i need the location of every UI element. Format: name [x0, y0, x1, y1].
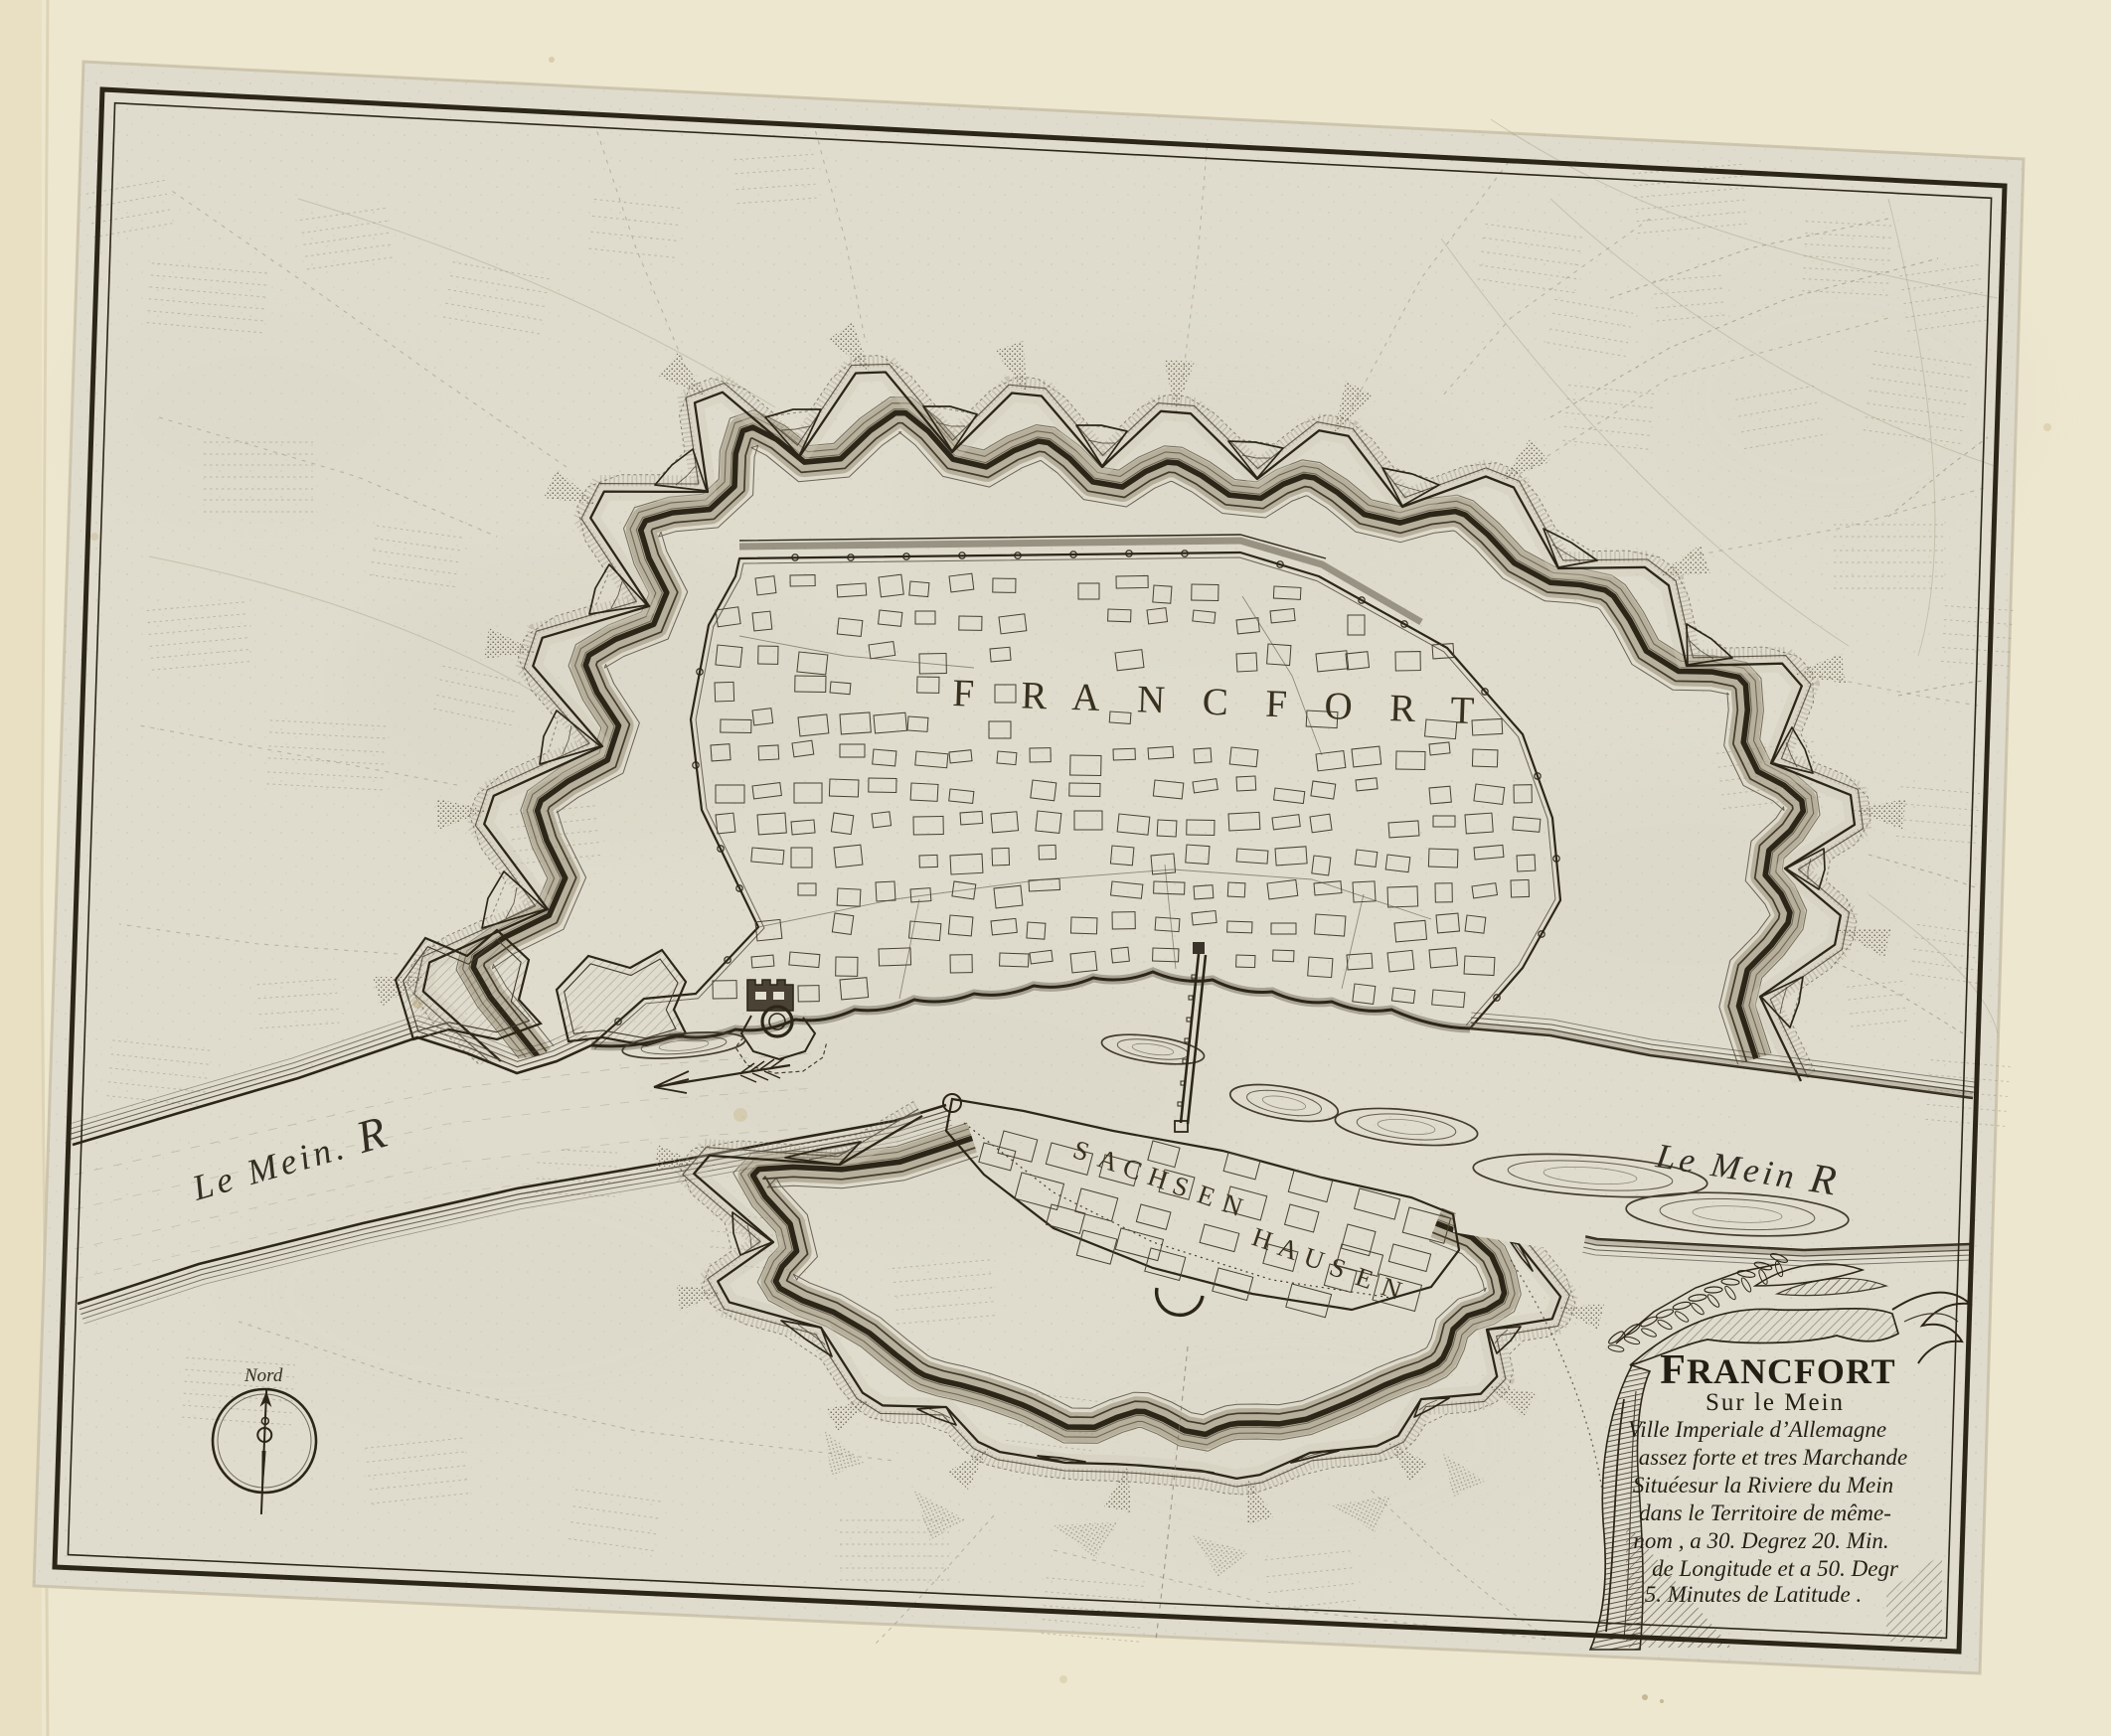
svg-text:Situéesur la Riviere du Mein: Situéesur la Riviere du Mein: [1633, 1473, 1893, 1498]
svg-text:5. Minutes de Latitude .: 5. Minutes de Latitude .: [1645, 1582, 1862, 1607]
svg-text:assez forte et tres Marchande: assez forte et tres Marchande: [1639, 1445, 1907, 1470]
svg-text:Nord: Nord: [244, 1365, 283, 1386]
svg-text:FRANCFORT: FRANCFORT: [1660, 1347, 1895, 1393]
svg-text:nom , a 30. Degrez 20. Min.: nom , a 30. Degrez 20. Min.: [1633, 1528, 1888, 1553]
svg-text:dans le Territoire de même-: dans le Territoire de même-: [1639, 1500, 1891, 1525]
svg-text:Sur le Mein: Sur le Mein: [1705, 1389, 1845, 1416]
svg-text:Ville Imperiale d’Allemagne: Ville Imperiale d’Allemagne: [1628, 1417, 1886, 1442]
svg-text:de Longitude et a 50. Degr: de Longitude et a 50. Degr: [1652, 1556, 1899, 1581]
